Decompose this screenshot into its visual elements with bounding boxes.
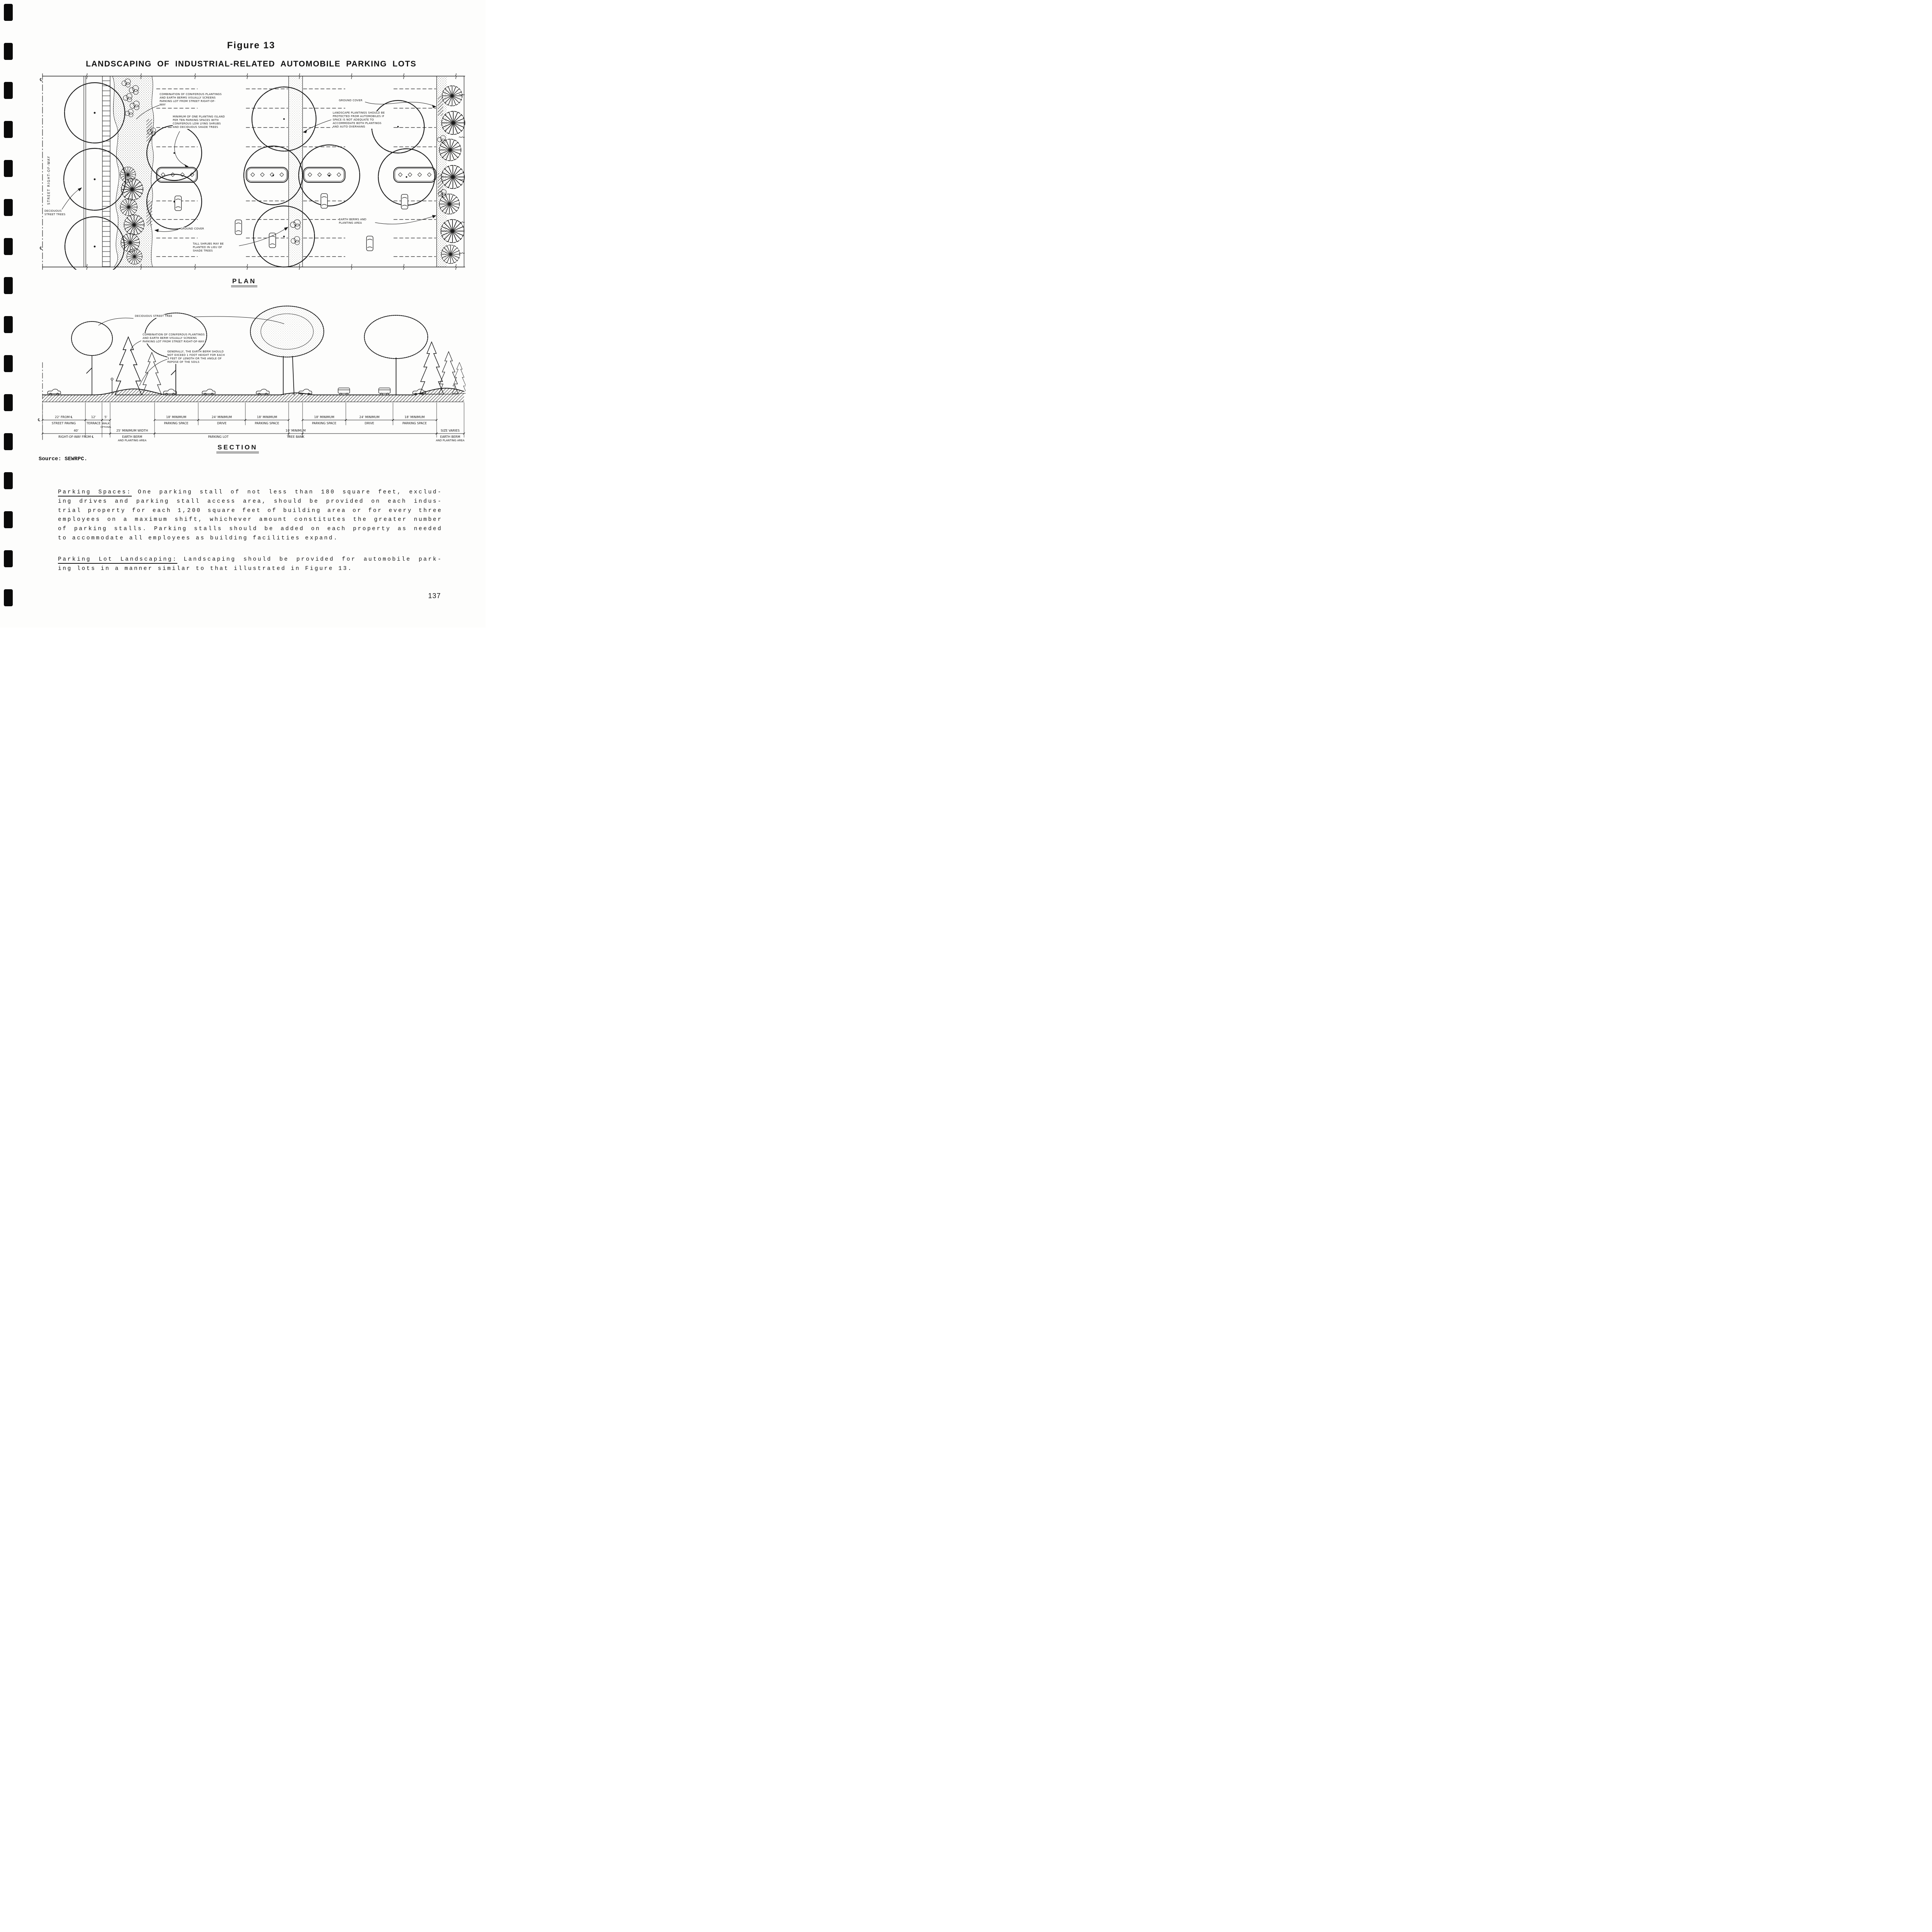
binder-mark	[4, 121, 13, 138]
svg-text:24' MINIMUM: 24' MINIMUM	[212, 415, 232, 419]
annotation-combination-plantings: COMBINATION OF CONIFEROUS PLANTINGS AND …	[160, 93, 222, 107]
paragraph-parking-lot-landscaping: Parking Lot Landscaping:Landscaping shou…	[58, 556, 442, 575]
sidewalk	[102, 76, 110, 267]
svg-text:24' MINIMUM: 24' MINIMUM	[359, 415, 379, 419]
annotation-combination-berm: COMBINATION OF CONIFEROUS PLANTINGS AND …	[143, 333, 205, 344]
binder-mark	[4, 394, 13, 411]
svg-text:18' MINIMUM: 18' MINIMUM	[166, 415, 186, 419]
binder-mark	[4, 4, 13, 21]
binder-mark	[4, 43, 13, 60]
annotation-landscape-plantings: LANDSCAPE PLANTINGS SHOULD BE PROTECTED …	[333, 111, 385, 129]
plan-linework: ℄ ℄ STREET RIGHT-OF-WAY	[39, 73, 465, 270]
figure-label: Figure 13	[37, 40, 466, 51]
binder-mark	[4, 238, 13, 255]
annotation-planting-island-minimum: MINIMUM OF ONE PLANTING ISLAND PER TEN P…	[173, 115, 225, 129]
binder-mark	[4, 160, 13, 177]
svg-text:SIZE VARIES: SIZE VARIES	[441, 429, 460, 432]
centerline-symbol-section: ℄	[37, 418, 41, 422]
svg-text:18' MINIMUM: 18' MINIMUM	[257, 415, 277, 419]
paragraph-parking-spaces: Parking Spaces:One parking stall of not …	[58, 489, 442, 544]
section-caption: SECTION	[216, 444, 259, 453]
svg-text:STREET PAVING: STREET PAVING	[52, 422, 76, 425]
svg-text:RIGHT-OF-WAY FROM ℄: RIGHT-OF-WAY FROM ℄	[58, 435, 94, 439]
section-drawing: ℄	[37, 305, 466, 444]
svg-text:18' MINIMUM: 18' MINIMUM	[314, 415, 334, 419]
annotation-tall-shrubs: TALL SHRUBS MAY BE PLANTED IN LIEU OF SH…	[193, 242, 224, 253]
svg-text:WALK: WALK	[102, 422, 110, 425]
svg-text:5': 5'	[104, 415, 107, 419]
binder-mark	[4, 433, 13, 450]
annotation-ground-cover-left: GROUND COVER	[180, 227, 204, 231]
plan-drawing: ℄ ℄ STREET RIGHT-OF-WAY COMBINATION OF C…	[37, 73, 466, 270]
binder-mark	[4, 355, 13, 372]
annotation-deciduous-street-trees: DECIDUOUS STREET TREES	[44, 209, 65, 216]
binder-mark	[4, 589, 13, 606]
right-berm	[437, 76, 465, 267]
svg-text:10' MINIMUM: 10' MINIMUM	[286, 429, 306, 432]
svg-text:PARKING SPACE: PARKING SPACE	[164, 422, 188, 425]
binder-mark	[4, 199, 13, 216]
centerline-symbol-bottom: ℄	[39, 246, 43, 251]
annotation-ground-cover-right: GROUND COVER	[339, 99, 362, 102]
svg-text:12': 12'	[91, 415, 96, 419]
svg-text:EARTH BERM: EARTH BERM	[440, 435, 460, 439]
svg-text:DRIVE: DRIVE	[217, 422, 227, 425]
annotation-deciduous-street-tree: DECIDUOUS STREET TREE	[135, 315, 172, 318]
ground-line	[43, 388, 464, 395]
dimension-labels: 22' FROM ℄ STREET PAVING 12' TERRACE 5' …	[52, 415, 464, 442]
page-number: 137	[428, 592, 441, 600]
section-drawing-svg: ℄	[37, 305, 466, 444]
svg-text:PARKING SPACE: PARKING SPACE	[255, 422, 279, 425]
svg-text:25' MINIMUM WIDTH: 25' MINIMUM WIDTH	[116, 429, 148, 432]
svg-text:AND PLANTING AREA: AND PLANTING AREA	[436, 439, 464, 442]
left-berm	[112, 76, 156, 267]
svg-text:TERRACE: TERRACE	[86, 422, 101, 425]
binder-mark	[4, 511, 13, 528]
tree-bank	[289, 76, 303, 267]
svg-text:18' MINIMUM: 18' MINIMUM	[405, 415, 425, 419]
svg-text:AND PLANTING AREA: AND PLANTING AREA	[118, 439, 146, 442]
section-linework: ℄	[37, 306, 466, 442]
binder-mark	[4, 82, 13, 99]
svg-text:PARKING SPACE: PARKING SPACE	[312, 422, 336, 425]
binder-mark	[4, 472, 13, 489]
parking-spaces-heading: Parking Spaces:	[58, 489, 132, 497]
svg-text:EARTH BERM: EARTH BERM	[122, 435, 142, 439]
binder-mark	[4, 316, 13, 333]
plan-caption: PLAN	[231, 277, 257, 287]
plan-drawing-svg: ℄ ℄ STREET RIGHT-OF-WAY	[37, 73, 466, 270]
svg-text:TREE BANK: TREE BANK	[286, 435, 304, 439]
svg-text:40': 40'	[74, 429, 78, 432]
svg-text:22' FROM ℄: 22' FROM ℄	[55, 415, 73, 419]
figure-title: LANDSCAPING OF INDUSTRIAL-RELATED AUTOMO…	[37, 60, 466, 69]
svg-text:PARKING LOT: PARKING LOT	[208, 435, 228, 439]
document-page: Figure 13 LANDSCAPING OF INDUSTRIAL-RELA…	[0, 0, 486, 628]
svg-text:DRIVE: DRIVE	[365, 422, 374, 425]
annotation-earth-berms: EARTH BERMS AND PLANTING AREA	[339, 218, 366, 225]
centerline-symbol-top: ℄	[39, 77, 43, 82]
annotation-berm-rule: GENERALLY, THE EARTH BERM SHOULD NOT EXC…	[167, 350, 225, 364]
parking-lot-landscaping-heading: Parking Lot Landscaping:	[58, 556, 177, 564]
section-trees	[71, 306, 466, 395]
binder-mark	[4, 277, 13, 294]
street-right-of-way-label: STREET RIGHT-OF-WAY	[47, 156, 51, 205]
binder-mark	[4, 550, 13, 567]
svg-text:OPTIONAL: OPTIONAL	[100, 426, 112, 429]
source-line: Source: SEWRPC.	[39, 456, 87, 462]
svg-text:PARKING SPACE: PARKING SPACE	[402, 422, 427, 425]
